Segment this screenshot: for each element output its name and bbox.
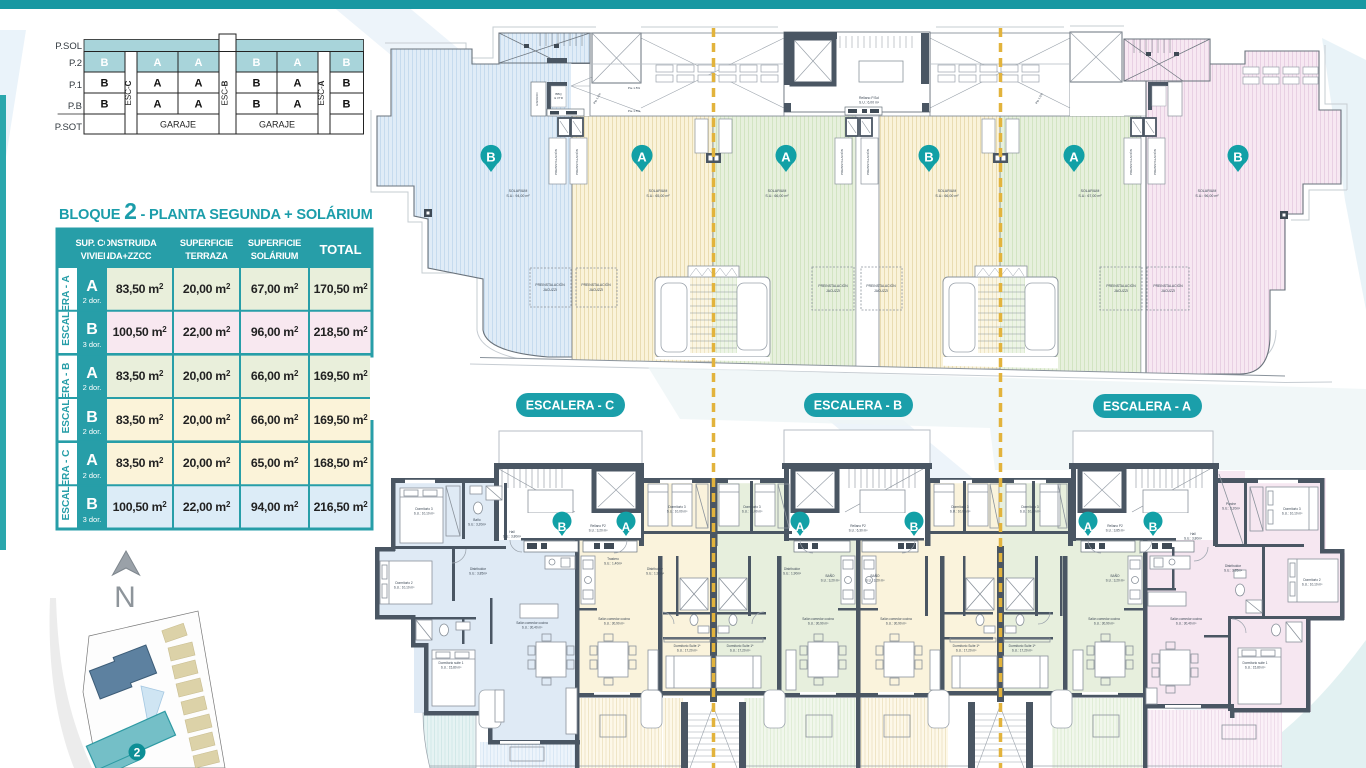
svg-text:S.U.: 30,90 m²: S.U.: 30,90 m² bbox=[886, 622, 907, 626]
svg-text:100,50 m2: 100,50 m2 bbox=[113, 500, 168, 514]
svg-text:2 dor.: 2 dor. bbox=[83, 296, 102, 305]
svg-text:B: B bbox=[101, 78, 109, 90]
svg-text:S.U.: 6,00 m²: S.U.: 6,00 m² bbox=[859, 101, 880, 105]
svg-text:S.U.: 10,10 m²: S.U.: 10,10 m² bbox=[1302, 583, 1323, 587]
svg-text:20,00 m2: 20,00 m2 bbox=[183, 369, 231, 383]
svg-text:Dormitorio 3: Dormitorio 3 bbox=[743, 505, 761, 509]
svg-text:B: B bbox=[558, 520, 567, 534]
svg-text:22,00 m2: 22,00 m2 bbox=[183, 325, 231, 339]
svg-text:P.1: P.1 bbox=[69, 80, 82, 91]
svg-text:SOLÁRIUM: SOLÁRIUM bbox=[251, 250, 299, 261]
svg-text:Salón comedor cocina: Salón comedor cocina bbox=[1088, 617, 1120, 621]
svg-text:S.U.: 10,00 m²: S.U.: 10,00 m² bbox=[667, 510, 688, 514]
svg-text:20,00 m2: 20,00 m2 bbox=[183, 456, 231, 470]
svg-text:S.U.: 96,00 m²: S.U.: 96,00 m² bbox=[1195, 194, 1219, 198]
svg-text:TOTAL: TOTAL bbox=[319, 242, 361, 257]
svg-text:Dormitorio 3: Dormitorio 3 bbox=[1021, 505, 1039, 509]
svg-text:218,50 m2: 218,50 m2 bbox=[314, 325, 369, 339]
svg-text:S.U.: 30,90 m²: S.U.: 30,90 m² bbox=[808, 622, 829, 626]
svg-text:S.U.: 1,40m²: S.U.: 1,40m² bbox=[604, 562, 622, 566]
svg-text:Hall: Hall bbox=[509, 530, 515, 534]
svg-text:A: A bbox=[1069, 150, 1079, 165]
svg-text:SOLARIUM: SOLARIUM bbox=[1081, 189, 1100, 193]
svg-text:S.U.: 3,85m²: S.U.: 3,85m² bbox=[1224, 569, 1242, 573]
svg-text:SOLARIUM: SOLARIUM bbox=[1198, 189, 1217, 193]
svg-text:P.SOL: P.SOL bbox=[55, 41, 82, 52]
svg-text:A: A bbox=[781, 150, 791, 165]
svg-text:20,00 m2: 20,00 m2 bbox=[183, 413, 231, 427]
svg-text:Distribuidor: Distribuidor bbox=[470, 567, 487, 571]
svg-text:S.U.: 3,20 m²: S.U.: 3,20 m² bbox=[589, 529, 608, 533]
svg-text:PREINSTALACIÓN: PREINSTALACIÓN bbox=[818, 283, 848, 288]
svg-text:ESC-A: ESC-A bbox=[317, 80, 326, 105]
svg-text:S.U.: 3,85m²: S.U.: 3,85m² bbox=[469, 572, 487, 576]
svg-text:Dormitorio 3: Dormitorio 3 bbox=[668, 505, 686, 509]
svg-text:SUP. CONSTRUIDA: SUP. CONSTRUIDA bbox=[75, 238, 157, 248]
svg-text:22,00 m2: 22,00 m2 bbox=[183, 500, 231, 514]
svg-text:B: B bbox=[1149, 520, 1158, 534]
svg-text:B: B bbox=[86, 409, 98, 426]
svg-text:SOLARIUM: SOLARIUM bbox=[649, 189, 668, 193]
svg-text:PREINSTALACIÓN: PREINSTALACIÓN bbox=[535, 282, 565, 287]
svg-text:B: B bbox=[86, 496, 98, 513]
svg-text:JACUZZI: JACUZZI bbox=[826, 289, 840, 293]
svg-text:ESC-C: ESC-C bbox=[124, 80, 133, 105]
svg-text:VIVIENDA+ZZCC: VIVIENDA+ZZCC bbox=[81, 251, 152, 261]
svg-text:BAÑO: BAÑO bbox=[825, 573, 835, 578]
svg-text:JACUZZI: JACUZZI bbox=[543, 288, 557, 292]
svg-text:Hall: Hall bbox=[1190, 532, 1196, 536]
svg-text:Distribuidor: Distribuidor bbox=[784, 567, 801, 571]
svg-text:66,00 m2: 66,00 m2 bbox=[251, 413, 299, 427]
svg-text:B: B bbox=[253, 57, 261, 69]
svg-text:PREINSTALACIÓN: PREINSTALACIÓN bbox=[865, 149, 870, 175]
svg-text:B: B bbox=[101, 57, 109, 69]
svg-text:83,50 m2: 83,50 m2 bbox=[116, 456, 164, 470]
svg-text:3 dor.: 3 dor. bbox=[83, 515, 102, 524]
svg-text:A: A bbox=[154, 78, 162, 90]
svg-text:A: A bbox=[622, 520, 631, 534]
svg-text:Salón comedor cocina: Salón comedor cocina bbox=[598, 617, 630, 621]
svg-text:S.U.: 17,20 m²: S.U.: 17,20 m² bbox=[677, 649, 698, 653]
svg-text:TERRAZA: TERRAZA bbox=[185, 251, 228, 261]
svg-text:S.U.: 67,00 m²: S.U.: 67,00 m² bbox=[1078, 194, 1102, 198]
svg-text:83,50 m2: 83,50 m2 bbox=[116, 369, 164, 383]
svg-text:A: A bbox=[154, 57, 162, 69]
svg-text:PREINSTALACIÓN: PREINSTALACIÓN bbox=[574, 149, 579, 175]
svg-text:66,00 m2: 66,00 m2 bbox=[251, 369, 299, 383]
svg-text:ESPACIO: ESPACIO bbox=[535, 92, 539, 106]
svg-text:Salón comedor cocina: Salón comedor cocina bbox=[880, 617, 912, 621]
svg-text:BAÑO: BAÑO bbox=[870, 573, 880, 578]
svg-text:ESCALERA - A: ESCALERA - A bbox=[1103, 400, 1191, 414]
svg-text:B: B bbox=[343, 78, 351, 90]
svg-text:S.U.: 17,20 m²: S.U.: 17,20 m² bbox=[1012, 649, 1033, 653]
svg-text:A: A bbox=[294, 57, 302, 69]
svg-text:& VTR: & VTR bbox=[554, 96, 564, 100]
svg-text:168,50 m2: 168,50 m2 bbox=[314, 456, 369, 470]
svg-text:SUPERFICIE: SUPERFICIE bbox=[248, 238, 301, 248]
svg-text:SUPERFICIE: SUPERFICIE bbox=[180, 238, 233, 248]
svg-text:Baño: Baño bbox=[473, 518, 481, 522]
svg-text:S.U.: 15,80 m²: S.U.: 15,80 m² bbox=[1245, 666, 1266, 670]
svg-text:170,50 m2: 170,50 m2 bbox=[314, 282, 369, 296]
svg-text:Salón comedor cocina: Salón comedor cocina bbox=[1170, 617, 1202, 621]
svg-text:94,00 m2: 94,00 m2 bbox=[251, 500, 299, 514]
svg-text:100,50 m2: 100,50 m2 bbox=[113, 325, 168, 339]
svg-text:67,00 m2: 67,00 m2 bbox=[251, 282, 299, 296]
svg-text:2 dor.: 2 dor. bbox=[83, 471, 102, 480]
svg-text:GARAJE: GARAJE bbox=[160, 120, 196, 130]
svg-text:2 dor.: 2 dor. bbox=[83, 427, 102, 436]
svg-text:Dormitorio suite 1: Dormitorio suite 1 bbox=[439, 661, 464, 665]
svg-text:S.U.: 3,20m²: S.U.: 3,20m² bbox=[1222, 507, 1240, 511]
svg-text:SOLARIUM: SOLARIUM bbox=[938, 189, 957, 193]
svg-text:Distribuidor: Distribuidor bbox=[647, 567, 664, 571]
svg-text:GARAJE: GARAJE bbox=[259, 120, 295, 130]
svg-text:169,50 m2: 169,50 m2 bbox=[314, 413, 369, 427]
svg-text:S.U.: 94,00 m²: S.U.: 94,00 m² bbox=[506, 194, 530, 198]
svg-text:Salón comedor cocina: Salón comedor cocina bbox=[802, 617, 834, 621]
svg-text:A: A bbox=[294, 99, 302, 111]
svg-text:B: B bbox=[253, 78, 261, 90]
svg-text:S.U.: 3,85 m²: S.U.: 3,85 m² bbox=[1106, 529, 1125, 533]
svg-text:B: B bbox=[924, 150, 933, 165]
svg-text:S.U.: 66,00 m²: S.U.: 66,00 m² bbox=[935, 194, 959, 198]
svg-text:P.B: P.B bbox=[68, 101, 82, 112]
svg-text:JACUZZI: JACUZZI bbox=[1161, 289, 1175, 293]
svg-text:Dormitorio 2: Dormitorio 2 bbox=[1303, 578, 1321, 582]
svg-text:2: 2 bbox=[134, 746, 141, 760]
svg-text:N: N bbox=[114, 581, 136, 614]
svg-text:S.U.: 1,90m²: S.U.: 1,90m² bbox=[783, 572, 801, 576]
svg-text:Salón comedor cocina: Salón comedor cocina bbox=[516, 621, 548, 625]
svg-text:A: A bbox=[294, 78, 302, 90]
svg-text:JACUZZI: JACUZZI bbox=[874, 289, 888, 293]
svg-text:S.U.: 3,20 m²: S.U.: 3,20 m² bbox=[1106, 579, 1125, 583]
svg-text:A: A bbox=[195, 99, 203, 111]
svg-text:216,50 m2: 216,50 m2 bbox=[314, 500, 369, 514]
svg-text:S.U.: 17,20 m²: S.U.: 17,20 m² bbox=[730, 649, 751, 653]
svg-text:96,00 m2: 96,00 m2 bbox=[251, 325, 299, 339]
svg-text:S.U.: 6,30 m²: S.U.: 6,30 m² bbox=[849, 529, 868, 533]
svg-text:S.U.: 10,10 m²: S.U.: 10,10 m² bbox=[394, 586, 415, 590]
svg-text:JACUZZI: JACUZZI bbox=[589, 288, 603, 292]
svg-text:A: A bbox=[154, 99, 162, 111]
svg-text:PREINSTALACIÓN: PREINSTALACIÓN bbox=[1153, 283, 1183, 288]
svg-text:S.U.: 10,00 m²: S.U.: 10,00 m² bbox=[950, 510, 971, 514]
svg-text:B: B bbox=[343, 57, 351, 69]
svg-text:ESCALERA - B: ESCALERA - B bbox=[814, 399, 902, 413]
svg-text:Dormitorio 3: Dormitorio 3 bbox=[1283, 507, 1301, 511]
svg-text:Pte 1.5%: Pte 1.5% bbox=[628, 109, 641, 113]
svg-text:PREINSTALACIÓN: PREINSTALACIÓN bbox=[1106, 283, 1136, 288]
svg-text:SOLARIUM: SOLARIUM bbox=[509, 189, 528, 193]
svg-text:Rellano P2: Rellano P2 bbox=[850, 524, 866, 528]
svg-text:PREINSTALACIÓN: PREINSTALACIÓN bbox=[553, 149, 558, 175]
svg-text:BAÑO: BAÑO bbox=[1110, 573, 1120, 578]
svg-text:S.U.: 10,10 m²: S.U.: 10,10 m² bbox=[1282, 512, 1303, 516]
svg-text:A: A bbox=[1084, 520, 1093, 534]
svg-text:B: B bbox=[910, 520, 919, 534]
svg-text:S.U.: 10,10 m²: S.U.: 10,10 m² bbox=[414, 512, 435, 516]
svg-text:A: A bbox=[195, 57, 203, 69]
svg-text:Porche: Porche bbox=[1226, 502, 1236, 506]
svg-text:Dormitorio 3: Dormitorio 3 bbox=[951, 505, 969, 509]
svg-text:Dormitorio Suite 1ª: Dormitorio Suite 1ª bbox=[727, 644, 755, 648]
svg-text:PREINSTALACIÓN: PREINSTALACIÓN bbox=[581, 282, 611, 287]
svg-text:PREINSTALACIÓN: PREINSTALACIÓN bbox=[839, 149, 844, 175]
svg-text:S.U.: 1,90m²: S.U.: 1,90m² bbox=[646, 572, 664, 576]
svg-text:83,50 m2: 83,50 m2 bbox=[116, 413, 164, 427]
svg-text:65,00 m2: 65,00 m2 bbox=[251, 456, 299, 470]
svg-text:B: B bbox=[101, 99, 109, 111]
svg-text:B: B bbox=[486, 150, 495, 165]
svg-text:S.U.: 30,90 m²: S.U.: 30,90 m² bbox=[604, 622, 625, 626]
svg-text:SOLARIUM: SOLARIUM bbox=[768, 189, 787, 193]
svg-text:S.U.: 15,80 m²: S.U.: 15,80 m² bbox=[441, 666, 462, 670]
svg-text:A: A bbox=[86, 365, 98, 382]
svg-text:169,50 m2: 169,50 m2 bbox=[314, 369, 369, 383]
svg-text:S.U.: 30,40 m²: S.U.: 30,40 m² bbox=[1176, 622, 1197, 626]
svg-text:P.SOT: P.SOT bbox=[55, 122, 82, 133]
svg-text:S.U.: 3,80m²: S.U.: 3,80m² bbox=[1184, 537, 1202, 541]
svg-text:Trastero: Trastero bbox=[607, 557, 619, 561]
svg-text:2 dor.: 2 dor. bbox=[83, 383, 102, 392]
svg-text:Rellano P.Sol: Rellano P.Sol bbox=[859, 96, 879, 100]
svg-text:P.2: P.2 bbox=[69, 58, 82, 69]
svg-text:S.U.: 3,20 m²: S.U.: 3,20 m² bbox=[866, 579, 885, 583]
svg-text:A: A bbox=[195, 78, 203, 90]
svg-text:A: A bbox=[796, 520, 805, 534]
svg-text:S.U.: 3,80m²: S.U.: 3,80m² bbox=[503, 535, 521, 539]
svg-text:S.U.: 3,20m²: S.U.: 3,20m² bbox=[468, 523, 486, 527]
svg-text:B: B bbox=[1233, 150, 1242, 165]
svg-text:Dormitorio Suite 1ª: Dormitorio Suite 1ª bbox=[674, 644, 702, 648]
svg-text:Dormitorio Suite 1ª: Dormitorio Suite 1ª bbox=[1009, 644, 1037, 648]
svg-text:Pte 1.5%: Pte 1.5% bbox=[628, 86, 641, 90]
svg-text:B: B bbox=[343, 99, 351, 111]
svg-text:PREINSTALACIÓN: PREINSTALACIÓN bbox=[1152, 149, 1157, 175]
svg-text:S.U.: 10,00 m²: S.U.: 10,00 m² bbox=[742, 510, 763, 514]
svg-text:ESCALERA - C: ESCALERA - C bbox=[526, 399, 614, 413]
svg-text:Rellano P2: Rellano P2 bbox=[590, 524, 606, 528]
svg-text:Dormitorio suite 1: Dormitorio suite 1 bbox=[1243, 661, 1268, 665]
svg-text:S.U.: 17,20 m²: S.U.: 17,20 m² bbox=[956, 649, 977, 653]
svg-text:PREINSTALACIÓN: PREINSTALACIÓN bbox=[1128, 149, 1133, 175]
svg-text:B: B bbox=[86, 321, 98, 338]
svg-text:S.U.: 30,90 m²: S.U.: 30,90 m² bbox=[1094, 622, 1115, 626]
svg-text:S.U.: 10,00 m²: S.U.: 10,00 m² bbox=[1020, 510, 1041, 514]
svg-text:A: A bbox=[86, 278, 98, 295]
svg-text:20,00 m2: 20,00 m2 bbox=[183, 282, 231, 296]
svg-text:A: A bbox=[86, 452, 98, 469]
svg-text:Dormitorio 2: Dormitorio 2 bbox=[395, 581, 413, 585]
svg-text:S.U.: 65,00 m²: S.U.: 65,00 m² bbox=[646, 194, 670, 198]
svg-text:ESC-B: ESC-B bbox=[221, 80, 230, 105]
svg-text:Rellano P2: Rellano P2 bbox=[1107, 524, 1123, 528]
svg-text:S.U.: 3,20 m²: S.U.: 3,20 m² bbox=[821, 579, 840, 583]
svg-text:PREINSTALACIÓN: PREINSTALACIÓN bbox=[866, 283, 896, 288]
svg-text:Distribuidor: Distribuidor bbox=[1225, 564, 1242, 568]
svg-text:Dormitorio 3: Dormitorio 3 bbox=[415, 507, 433, 511]
svg-text:S.U.: 30,40 m²: S.U.: 30,40 m² bbox=[522, 626, 543, 630]
svg-text:83,50 m2: 83,50 m2 bbox=[116, 282, 164, 296]
svg-text:JACUZZI: JACUZZI bbox=[1114, 289, 1128, 293]
svg-text:Dormitorio Suite 1ª: Dormitorio Suite 1ª bbox=[953, 644, 981, 648]
svg-text:A: A bbox=[637, 150, 647, 165]
svg-text:B: B bbox=[253, 99, 261, 111]
svg-text:3 dor.: 3 dor. bbox=[83, 340, 102, 349]
svg-text:S.U.: 66,00 m²: S.U.: 66,00 m² bbox=[765, 194, 789, 198]
